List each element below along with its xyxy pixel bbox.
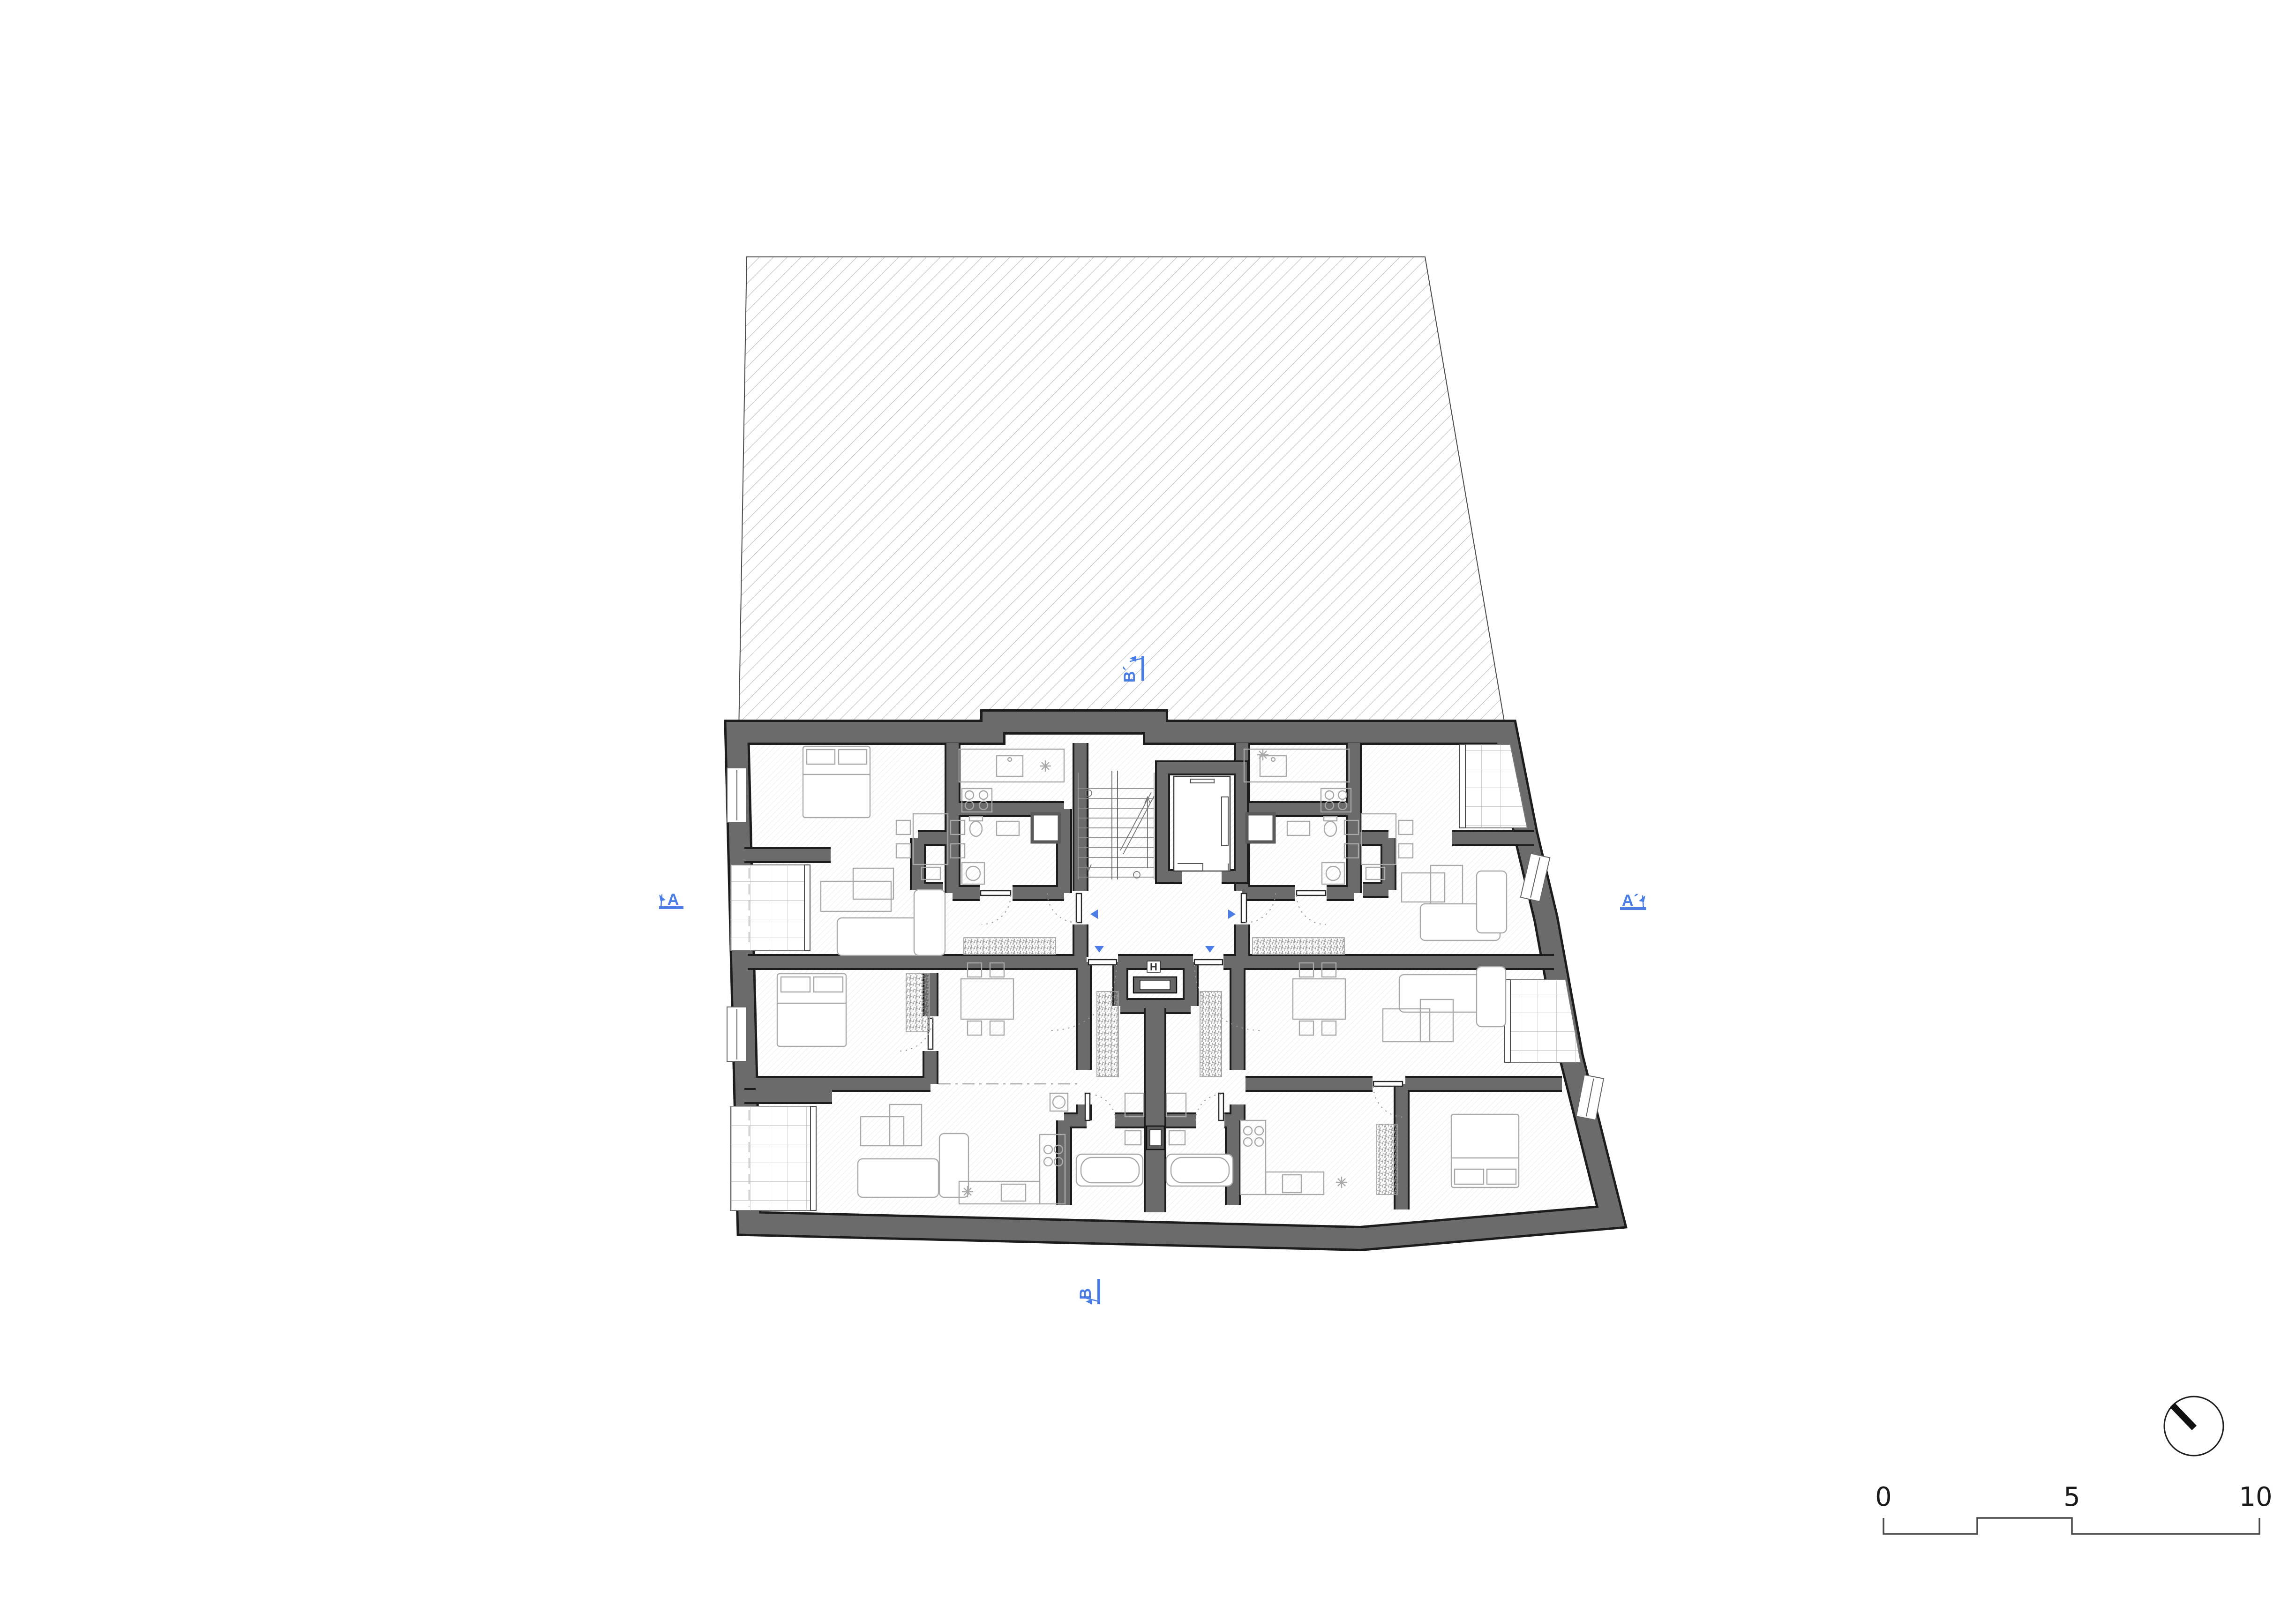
wardrobe-hall-right — [1200, 992, 1222, 1077]
north-arrow-icon — [2164, 1397, 2223, 1456]
wardrobe-upper-right — [1253, 938, 1344, 954]
scale-label-10: 10 — [2239, 1482, 2272, 1512]
balcony-upper-left — [730, 865, 810, 951]
section-marker-b-bottom: B — [1077, 1279, 1099, 1305]
entry-door-left-apartment — [1076, 894, 1081, 923]
shaft-label: H — [1150, 961, 1157, 973]
floor-plan-sheet: H — [0, 0, 2296, 1615]
site-hatch-area — [739, 257, 1506, 732]
scale-bar-line — [1883, 1518, 2259, 1534]
wardrobe-upper-left — [964, 938, 1056, 954]
wardrobe-lower-right-bedroom — [1377, 1124, 1397, 1194]
wardrobe-hall-left — [1097, 992, 1118, 1077]
window-lower-left-bedroom — [727, 1007, 747, 1061]
entry-door-right-apartment — [1241, 894, 1246, 923]
window-upper-left-bedroom — [727, 768, 747, 822]
section-label-a: A — [668, 891, 679, 909]
bed-lower-left — [777, 974, 846, 1046]
floor-plan-canvas: H — [0, 0, 2296, 1615]
balcony-lower-left — [730, 1106, 816, 1210]
balcony-glass-door — [1460, 744, 1465, 828]
scale-label-5: 5 — [2063, 1482, 2080, 1512]
bed-upper-left — [803, 746, 870, 818]
building: H — [727, 722, 1612, 1239]
wardrobe-lower-left-bedroom — [906, 974, 930, 1032]
section-label-a-prime: A´ — [1622, 892, 1639, 909]
balcony-glass-door — [810, 1106, 816, 1210]
section-label-b: B — [1077, 1288, 1095, 1300]
elevator-shaft — [1163, 768, 1241, 877]
scale-bar: 0 5 10 — [1875, 1482, 2272, 1534]
section-label-b-prime: B´ — [1121, 666, 1139, 683]
door-lower-right-hall — [1194, 960, 1223, 965]
elevator-icon — [1174, 776, 1230, 871]
scale-label-0: 0 — [1875, 1482, 1892, 1512]
door-lower-right-bedroom — [1373, 1082, 1403, 1086]
door-upper-left-bath — [981, 891, 1011, 895]
bed-lower-right — [1451, 1114, 1519, 1187]
door-lower-right-bath — [1219, 1093, 1223, 1120]
door-lower-left-bath — [1085, 1093, 1090, 1120]
door-lower-left-hall — [1088, 960, 1117, 965]
section-marker-a-right: A´ — [1620, 892, 1646, 909]
balcony-glass-door — [804, 865, 810, 951]
door-upper-right-bath — [1297, 891, 1326, 895]
section-marker-a-left: A — [659, 891, 683, 909]
